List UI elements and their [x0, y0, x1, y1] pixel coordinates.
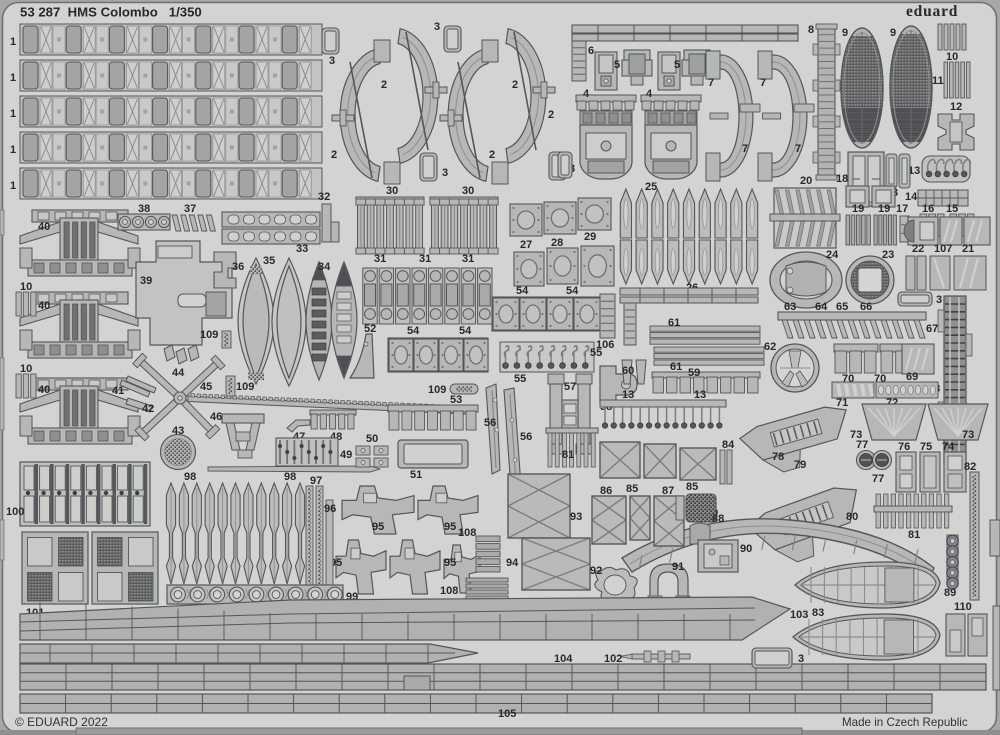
svg-text:102: 102	[604, 653, 622, 665]
svg-text:1: 1	[10, 36, 16, 48]
svg-text:55: 55	[514, 373, 526, 385]
svg-text:85: 85	[626, 483, 638, 495]
svg-text:13: 13	[622, 389, 634, 401]
svg-text:32: 32	[318, 191, 330, 203]
svg-text:98: 98	[284, 471, 296, 483]
svg-text:42: 42	[142, 403, 154, 415]
svg-text:69: 69	[906, 371, 918, 383]
svg-text:49: 49	[340, 449, 352, 461]
svg-text:60: 60	[622, 365, 634, 377]
svg-text:7: 7	[708, 77, 714, 89]
svg-text:31: 31	[374, 253, 386, 265]
svg-text:85: 85	[686, 481, 698, 493]
svg-text:31: 31	[419, 253, 431, 265]
svg-text:7: 7	[795, 143, 801, 155]
svg-text:109: 109	[236, 381, 254, 393]
svg-text:22: 22	[912, 243, 924, 255]
svg-text:35: 35	[263, 255, 275, 267]
svg-text:62: 62	[764, 341, 776, 353]
svg-text:21: 21	[962, 243, 974, 255]
svg-text:18: 18	[836, 173, 848, 185]
svg-text:eduard: eduard	[906, 3, 958, 20]
svg-text:75: 75	[920, 441, 932, 453]
svg-text:77: 77	[856, 439, 868, 451]
svg-text:1: 1	[10, 108, 16, 120]
svg-text:93: 93	[570, 511, 582, 523]
svg-text:80: 80	[846, 511, 858, 523]
svg-text:3: 3	[798, 653, 804, 665]
svg-text:19: 19	[852, 203, 864, 215]
svg-text:34: 34	[318, 261, 331, 273]
svg-text:2: 2	[489, 149, 495, 161]
svg-text:110: 110	[954, 601, 972, 613]
svg-text:74: 74	[942, 441, 955, 453]
svg-text:7: 7	[742, 143, 748, 155]
svg-text:10: 10	[20, 281, 32, 293]
svg-text:73: 73	[962, 429, 974, 441]
svg-text:57: 57	[564, 381, 576, 393]
svg-text:107: 107	[934, 243, 952, 255]
svg-text:84: 84	[722, 439, 735, 451]
svg-text:12: 12	[950, 101, 962, 113]
svg-text:44: 44	[172, 367, 185, 379]
svg-text:24: 24	[826, 249, 839, 261]
svg-text:33: 33	[296, 243, 308, 255]
svg-text:52: 52	[364, 323, 376, 335]
svg-text:2: 2	[331, 149, 337, 161]
svg-text:76: 76	[898, 441, 910, 453]
svg-text:78: 78	[772, 451, 784, 463]
svg-text:5: 5	[674, 59, 680, 71]
svg-text:97: 97	[310, 475, 322, 487]
svg-text:29: 29	[584, 231, 596, 243]
svg-text:3: 3	[442, 167, 448, 179]
svg-text:54: 54	[459, 325, 472, 337]
svg-text:17: 17	[896, 203, 908, 215]
svg-text:108: 108	[440, 585, 458, 597]
svg-text:104: 104	[554, 653, 573, 665]
svg-text:2: 2	[548, 109, 554, 121]
svg-text:30: 30	[462, 185, 474, 197]
svg-text:38: 38	[138, 203, 150, 215]
svg-text:40: 40	[38, 221, 50, 233]
svg-text:3: 3	[434, 21, 440, 33]
svg-text:77: 77	[872, 473, 884, 485]
svg-text:23: 23	[882, 249, 894, 261]
svg-text:105: 105	[498, 708, 516, 720]
svg-text:43: 43	[172, 425, 184, 437]
svg-text:8: 8	[808, 24, 814, 36]
svg-text:54: 54	[407, 325, 420, 337]
svg-text:81: 81	[908, 529, 920, 541]
svg-text:46: 46	[210, 411, 222, 423]
svg-text:40: 40	[38, 300, 50, 312]
svg-text:14: 14	[905, 191, 918, 203]
svg-text:25: 25	[645, 181, 657, 193]
svg-text:91: 91	[672, 561, 684, 573]
svg-text:64: 64	[815, 301, 828, 313]
svg-text:63: 63	[784, 301, 796, 313]
svg-text:20: 20	[800, 175, 812, 187]
svg-text:90: 90	[740, 543, 752, 555]
svg-text:109: 109	[428, 384, 446, 396]
svg-text:45: 45	[200, 381, 212, 393]
svg-text:9: 9	[842, 27, 848, 39]
svg-text:59: 59	[688, 367, 700, 379]
svg-text:3: 3	[936, 294, 942, 306]
svg-text:40: 40	[38, 384, 50, 396]
svg-text:7: 7	[760, 77, 766, 89]
svg-text:53 287 HMS Colombo 1/350: 53 287 HMS Colombo 1/350	[20, 5, 202, 20]
svg-text:61: 61	[668, 317, 680, 329]
svg-text:89: 89	[944, 587, 956, 599]
svg-text:55: 55	[590, 347, 602, 359]
svg-text:16: 16	[922, 203, 934, 215]
svg-text:71: 71	[836, 397, 848, 409]
svg-text:95: 95	[372, 521, 384, 533]
svg-text:56: 56	[520, 431, 532, 443]
svg-text:103: 103	[790, 609, 808, 621]
svg-text:1: 1	[10, 144, 16, 156]
svg-text:2: 2	[512, 79, 518, 91]
svg-text:4: 4	[583, 88, 590, 100]
svg-text:4: 4	[646, 88, 653, 100]
svg-text:86: 86	[600, 485, 612, 497]
svg-text:28: 28	[551, 237, 563, 249]
svg-text:100: 100	[6, 506, 24, 518]
svg-text:109: 109	[200, 329, 218, 341]
svg-text:79: 79	[794, 459, 806, 471]
svg-text:66: 66	[860, 301, 872, 313]
svg-text:10: 10	[20, 363, 32, 375]
svg-text:94: 94	[506, 557, 519, 569]
svg-text:82: 82	[964, 461, 976, 473]
svg-text:2: 2	[381, 79, 387, 91]
svg-text:95: 95	[444, 557, 456, 569]
svg-text:88: 88	[712, 513, 724, 525]
svg-text:51: 51	[410, 469, 422, 481]
svg-text:39: 39	[140, 275, 152, 287]
svg-text:83: 83	[812, 607, 824, 619]
svg-text:65: 65	[836, 301, 848, 313]
svg-text:9: 9	[890, 27, 896, 39]
svg-text:5: 5	[614, 59, 620, 71]
svg-text:81: 81	[562, 449, 574, 461]
svg-text:31: 31	[462, 253, 474, 265]
svg-text:87: 87	[662, 485, 674, 497]
svg-text:41: 41	[112, 385, 124, 397]
svg-text:36: 36	[232, 261, 244, 273]
svg-text:11: 11	[932, 75, 944, 87]
svg-text:56: 56	[484, 417, 496, 429]
svg-text:1: 1	[10, 180, 16, 192]
svg-text:53: 53	[450, 394, 462, 406]
svg-text:67: 67	[926, 323, 938, 335]
svg-text:6: 6	[588, 45, 594, 57]
svg-text:19: 19	[878, 203, 890, 215]
svg-text:10: 10	[946, 51, 958, 63]
svg-text:15: 15	[946, 203, 958, 215]
svg-text:54: 54	[566, 285, 579, 297]
svg-text:3: 3	[329, 55, 335, 67]
svg-text:54: 54	[516, 285, 529, 297]
svg-text:92: 92	[590, 565, 602, 577]
svg-text:1: 1	[10, 72, 16, 84]
svg-text:108: 108	[458, 527, 476, 539]
svg-text:50: 50	[366, 433, 378, 445]
svg-text:13: 13	[694, 389, 706, 401]
svg-text:© EDUARD 2022: © EDUARD 2022	[15, 715, 108, 729]
svg-text:Made in Czech Republic: Made in Czech Republic	[842, 716, 968, 729]
svg-text:98: 98	[184, 471, 196, 483]
svg-text:96: 96	[324, 503, 336, 515]
svg-text:61: 61	[670, 361, 682, 373]
svg-text:37: 37	[184, 203, 196, 215]
svg-text:30: 30	[386, 185, 398, 197]
svg-text:95: 95	[444, 521, 456, 533]
svg-text:27: 27	[520, 239, 532, 251]
